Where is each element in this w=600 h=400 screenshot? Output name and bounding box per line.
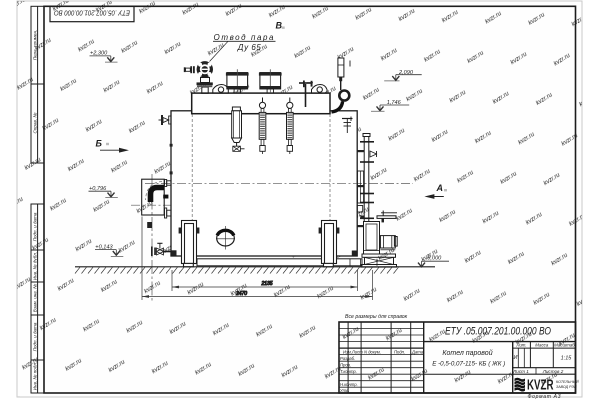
svg-text:2135: 2135 [260, 281, 272, 287]
svg-text:Перв. примен.: Перв. примен. [33, 30, 38, 61]
svg-text:1,746: 1,746 [387, 100, 402, 106]
svg-text:2470: 2470 [235, 291, 247, 297]
svg-text:В: В [276, 21, 283, 31]
svg-text:КОТЕЛЬНЫЙ: КОТЕЛЬНЫЙ [556, 380, 579, 384]
svg-text:KVZR: KVZR [527, 378, 554, 394]
svg-text:+0,143: +0,143 [95, 244, 113, 250]
svg-text:Лист 1: Лист 1 [512, 369, 529, 374]
svg-text:N докум.: N докум. [364, 349, 381, 354]
svg-text:Масштаб: Масштаб [554, 343, 575, 348]
svg-text:0,000: 0,000 [427, 256, 442, 262]
svg-text:Дата: Дата [411, 349, 424, 354]
svg-text:Листов 2: Листов 2 [542, 369, 564, 374]
svg-text:А: А [436, 183, 444, 193]
svg-text:Разраб.: Разраб. [340, 356, 355, 361]
svg-text:Е -0,5-0,07-115- КБ ( ЖК ): Е -0,5-0,07-115- КБ ( ЖК ) [432, 360, 505, 367]
svg-text:Подп. и дата: Подп. и дата [33, 212, 38, 241]
svg-text:Т.контр.: Т.контр. [340, 369, 357, 374]
svg-text:Изм.Лист: Изм.Лист [343, 349, 363, 354]
svg-text:Б: Б [96, 139, 103, 149]
svg-text:Лит.: Лит. [515, 343, 526, 348]
svg-text:Все размеры для справок: Все размеры для справок [345, 314, 408, 320]
svg-text:Н.контр.: Н.контр. [340, 382, 358, 387]
svg-text:Подп. и дата: Подп. и дата [33, 322, 38, 351]
svg-text:ЗАВОД РЭП: ЗАВОД РЭП [556, 385, 577, 389]
svg-text:Отвод пара: Отвод пара [214, 33, 275, 42]
svg-text:1:15: 1:15 [561, 356, 573, 362]
svg-text:Ду 65: Ду 65 [237, 43, 262, 52]
svg-text:2,090: 2,090 [398, 70, 414, 76]
svg-text:Утв.: Утв. [340, 388, 350, 393]
svg-text:И: И [514, 355, 518, 361]
svg-text:Пров.: Пров. [340, 362, 351, 367]
svg-text:Масса: Масса [535, 343, 549, 348]
svg-text:+2,300: +2,300 [90, 50, 108, 56]
svg-text:Инв. № дубл.: Инв. № дубл. [33, 252, 38, 280]
svg-text:Котел паровой: Котел паровой [442, 349, 492, 357]
svg-text:+0,796: +0,796 [89, 186, 107, 192]
svg-text:Взам. инв. №: Взам. инв. № [33, 284, 38, 312]
svg-text:Подп.: Подп. [394, 349, 405, 354]
svg-text:ЕТУ .05.007.201.00.000 ВО: ЕТУ .05.007.201.00.000 ВО [54, 9, 130, 16]
svg-text:ЕТУ .05.007.201.00.000 ВО: ЕТУ .05.007.201.00.000 ВО [445, 326, 551, 338]
svg-text:Справ. №: Справ. № [33, 113, 38, 134]
svg-text:Инв. № подл.: Инв. № подл. [33, 362, 38, 391]
svg-text:Формат А3: Формат А3 [528, 394, 561, 400]
